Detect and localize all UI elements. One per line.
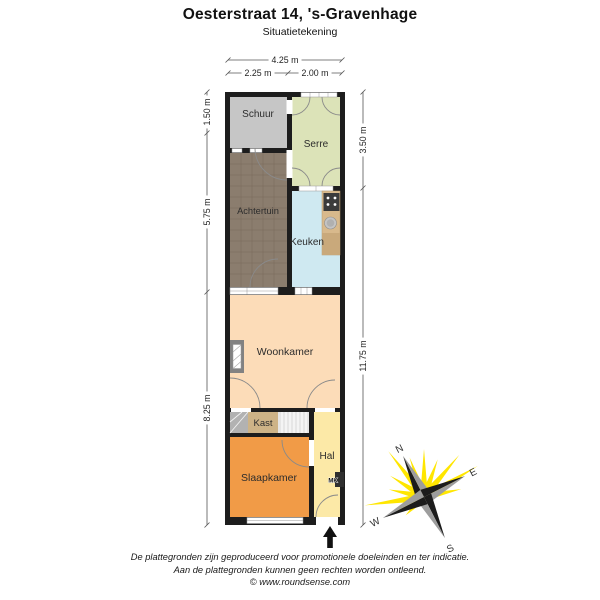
floorplan: Schuur Serre Achtertuin Keuken Woonkamer… xyxy=(225,92,345,548)
dim-left-top: 1.50 m xyxy=(202,96,212,129)
label-keuken: Keuken xyxy=(290,237,324,248)
label-serre: Serre xyxy=(304,139,329,150)
dim-left-middle: 5.75 m xyxy=(202,196,212,229)
compass-east-label: E xyxy=(468,466,479,479)
credit-line: © www.roundsense.com xyxy=(0,576,600,589)
footer-disclaimer: De plattegronden zijn geproduceerd voor … xyxy=(0,551,600,589)
label-schuur: Schuur xyxy=(242,109,274,120)
room-schuur xyxy=(230,97,287,148)
stove xyxy=(324,193,340,211)
dim-left-bottom: 8.25 m xyxy=(202,392,212,425)
dim-width-right: 2.00 m xyxy=(299,68,332,78)
label-hal: Hal xyxy=(319,451,334,462)
dim-width-total: 4.25 m xyxy=(269,55,302,65)
kitchen-counter xyxy=(322,191,340,255)
compass-north-label: N xyxy=(394,443,405,456)
label-meterkast: MK xyxy=(328,479,338,485)
label-slaapkamer: Slaapkamer xyxy=(241,472,298,484)
label-achtertuin: Achtertuin xyxy=(237,206,279,216)
entrance-arrow xyxy=(323,526,337,548)
stair-treads xyxy=(282,412,306,433)
label-kast: Kast xyxy=(253,418,272,429)
disclaimer-line-2: Aan de plattegronden kunnen geen rechten… xyxy=(0,564,600,577)
dim-right-bottom: 11.75 m xyxy=(358,337,368,374)
room-hal xyxy=(314,412,340,517)
dim-width-left: 2.25 m xyxy=(242,68,275,78)
floorplan-drawing: Schuur Serre Achtertuin Keuken Woonkamer… xyxy=(0,0,600,600)
fireplace xyxy=(230,340,244,373)
dim-right-top: 3.50 m xyxy=(358,124,368,157)
label-woonkamer: Woonkamer xyxy=(257,346,314,358)
disclaimer-line-1: De plattegronden zijn geproduceerd voor … xyxy=(0,551,600,564)
compass-west-label: W xyxy=(369,516,383,530)
